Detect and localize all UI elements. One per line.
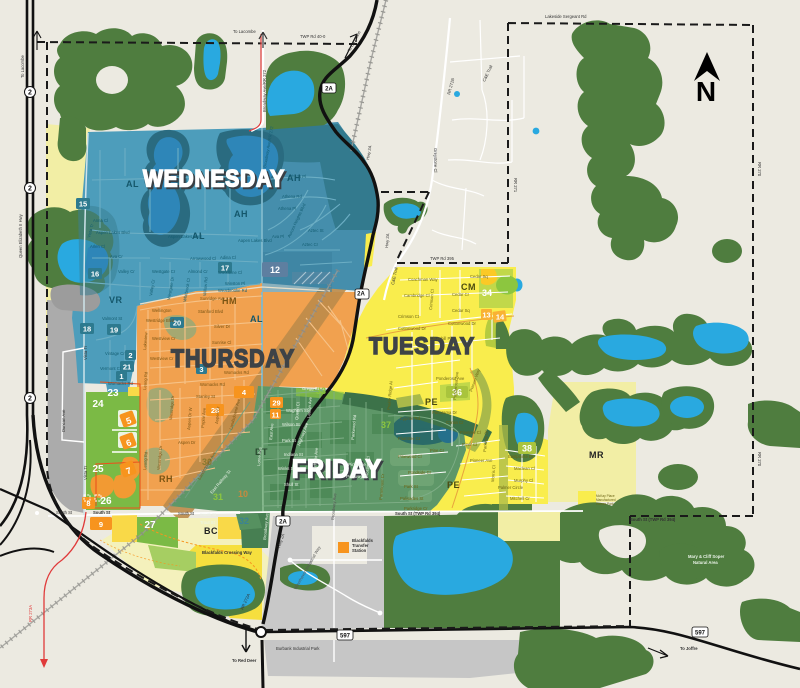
svg-text:Athens Pl: Athens Pl — [288, 174, 306, 179]
svg-text:Womacks Rd: Womacks Rd — [108, 381, 133, 386]
svg-text:14: 14 — [496, 313, 505, 322]
svg-text:Lakeside Sergeant Rd: Lakeside Sergeant Rd — [545, 14, 587, 19]
svg-text:RH: RH — [159, 474, 173, 484]
svg-text:Wellington: Wellington — [152, 308, 172, 313]
svg-text:Natural Area: Natural Area — [693, 560, 718, 565]
svg-text:Stanley St: Stanley St — [196, 394, 216, 399]
svg-text:Park St: Park St — [404, 484, 419, 489]
svg-text:Westview Cr: Westview Cr — [150, 356, 174, 361]
svg-text:9: 9 — [99, 520, 103, 529]
svg-text:Athena Pl: Athena Pl — [278, 206, 296, 211]
svg-text:VR: VR — [109, 295, 123, 305]
svg-text:1: 1 — [119, 372, 123, 381]
svg-text:C'man Cr: C'man Cr — [446, 420, 464, 425]
svg-text:Mary & Cliff Soper: Mary & Cliff Soper — [688, 554, 725, 559]
svg-text:Aspen Lakes Blvd: Aspen Lakes Blvd — [168, 234, 202, 239]
svg-text:Sunridge Ave: Sunridge Ave — [200, 296, 226, 301]
svg-text:Pondside Cr: Pondside Cr — [408, 470, 432, 475]
svg-text:Valley Cr: Valley Cr — [118, 269, 135, 274]
svg-text:Westgate Cr: Westgate Cr — [152, 269, 176, 274]
svg-text:Vista Tr: Vista Tr — [83, 345, 88, 360]
svg-text:15: 15 — [79, 200, 87, 209]
svg-text:AH: AH — [234, 209, 248, 219]
svg-text:Pinetree Cl: Pinetree Cl — [460, 430, 481, 435]
svg-text:27: 27 — [144, 520, 156, 531]
svg-text:597: 597 — [340, 634, 351, 640]
svg-text:Piper Cl: Piper Cl — [462, 442, 477, 447]
svg-text:Maclean Cl: Maclean Cl — [514, 466, 535, 471]
svg-text:Almond Cr: Almond Cr — [188, 269, 208, 274]
svg-text:Pine Cr: Pine Cr — [430, 448, 445, 453]
svg-text:2: 2 — [28, 396, 32, 403]
svg-text:Winks St: Winks St — [278, 466, 295, 471]
svg-text:South St (TWP Rd 394): South St (TWP Rd 394) — [630, 517, 676, 522]
svg-text:Panorama Dr: Panorama Dr — [432, 410, 458, 415]
svg-text:Park: Park — [420, 432, 428, 436]
svg-text:Weatbrooke Rd: Weatbrooke Rd — [218, 288, 248, 293]
svg-text:18: 18 — [83, 325, 91, 334]
svg-text:23: 23 — [107, 388, 119, 399]
svg-text:Duncan Ave: Duncan Ave — [61, 409, 66, 432]
svg-text:Wilson St: Wilson St — [282, 422, 301, 427]
svg-text:Park St: Park St — [282, 438, 297, 443]
svg-text:Palmer Circle: Palmer Circle — [498, 485, 524, 490]
svg-text:Murphy Cl: Murphy Cl — [514, 478, 533, 483]
svg-text:TWP Rd 40-0: TWP Rd 40-0 — [300, 34, 326, 39]
svg-text:Ava Cr: Ava Cr — [110, 254, 123, 259]
svg-text:2: 2 — [28, 186, 32, 193]
svg-text:Cedar Sq: Cedar Sq — [470, 274, 488, 279]
svg-text:To Lacombe: To Lacombe — [20, 55, 25, 78]
svg-text:32: 32 — [239, 516, 249, 526]
svg-text:Blackfalds Crossing Way: Blackfalds Crossing Way — [202, 550, 253, 555]
svg-text:To Lacombe: To Lacombe — [233, 29, 256, 34]
svg-text:Cottonwood Dr: Cottonwood Dr — [448, 321, 477, 326]
svg-text:Gregg St: Gregg St — [302, 386, 320, 391]
svg-text:South St: South St — [200, 512, 217, 517]
svg-text:TWP Rd 395: TWP Rd 395 — [430, 256, 455, 261]
svg-text:12: 12 — [270, 265, 280, 275]
svg-text:Broadway Ave/RR 272: Broadway Ave/RR 272 — [262, 69, 267, 112]
svg-text:N: N — [696, 76, 716, 107]
svg-text:Homes Park: Homes Park — [596, 502, 614, 506]
svg-text:AL: AL — [250, 314, 263, 324]
svg-text:Arrowwood Cl: Arrowwood Cl — [190, 256, 216, 261]
svg-text:Valmont St: Valmont St — [102, 316, 123, 321]
svg-text:Coachman Way: Coachman Way — [408, 277, 439, 282]
svg-text:Aztec Cr: Aztec Cr — [302, 242, 319, 247]
svg-text:Shull St: Shull St — [284, 482, 299, 487]
svg-text:Anna Cl: Anna Cl — [93, 218, 108, 223]
svg-text:2A: 2A — [357, 292, 365, 298]
svg-text:29: 29 — [272, 399, 280, 408]
svg-text:Arlen Cl: Arlen Cl — [90, 244, 105, 249]
svg-text:Crimson Ct: Crimson Ct — [398, 314, 420, 319]
svg-text:TUESDAY: TUESDAY — [369, 333, 475, 360]
svg-text:31: 31 — [213, 492, 223, 502]
svg-text:2A: 2A — [325, 87, 333, 93]
svg-text:Burbank Industrial Park: Burbank Industrial Park — [276, 646, 320, 651]
svg-text:PE: PE — [425, 397, 438, 407]
svg-text:2: 2 — [28, 90, 32, 97]
svg-text:AL: AL — [126, 179, 139, 189]
svg-text:11: 11 — [272, 411, 280, 420]
svg-text:Centennial: Centennial — [416, 427, 434, 431]
svg-text:Womacks Rd: Womacks Rd — [224, 370, 249, 375]
svg-text:19: 19 — [110, 326, 118, 335]
svg-text:Pinewood Cl: Pinewood Cl — [398, 454, 422, 459]
svg-text:Aztec St: Aztec St — [308, 228, 324, 233]
svg-text:WEDNESDAY: WEDNESDAY — [143, 166, 285, 193]
svg-text:597: 597 — [695, 631, 706, 637]
svg-text:Stanford Blvd: Stanford Blvd — [198, 309, 224, 314]
svg-text:21: 21 — [123, 363, 131, 372]
svg-text:Cyprus Rd: Cyprus Rd — [400, 416, 420, 421]
svg-text:Westview Cr: Westview Cr — [152, 336, 176, 341]
svg-text:Eastpointe Dr: Eastpointe Dr — [508, 454, 534, 459]
svg-text:Woodbine Cl: Woodbine Cl — [218, 270, 242, 275]
svg-text:2: 2 — [128, 351, 132, 360]
svg-text:Churchill Pl: Churchill Pl — [430, 336, 451, 341]
svg-text:RR 273A: RR 273A — [28, 605, 33, 622]
svg-text:RR 270: RR 270 — [757, 452, 762, 467]
svg-text:25: 25 — [92, 464, 104, 475]
svg-text:Silver Dr: Silver Dr — [214, 324, 231, 329]
svg-text:13: 13 — [482, 311, 490, 320]
svg-text:10: 10 — [238, 489, 248, 499]
svg-text:Vermont Cl: Vermont Cl — [100, 366, 121, 371]
svg-text:South St: South St — [56, 510, 73, 515]
svg-text:Palisades St: Palisades St — [400, 496, 424, 501]
svg-text:Sunrise Cl: Sunrise Cl — [212, 340, 231, 345]
svg-text:26: 26 — [100, 496, 112, 507]
svg-text:34: 34 — [482, 288, 492, 298]
svg-text:16: 16 — [91, 270, 99, 279]
svg-text:Womacks Rd: Womacks Rd — [200, 382, 225, 387]
svg-text:South St: South St — [93, 510, 111, 515]
svg-text:Aspen Dr: Aspen Dr — [178, 440, 196, 445]
svg-text:Pioneer Ave: Pioneer Ave — [470, 458, 493, 463]
svg-text:Indiana St: Indiana St — [284, 452, 304, 457]
svg-text:PE: PE — [447, 480, 460, 490]
svg-text:37: 37 — [381, 420, 391, 430]
svg-text:24: 24 — [92, 399, 104, 410]
svg-text:Plumtree Cr: Plumtree Cr — [398, 436, 421, 441]
svg-text:To Joffre: To Joffre — [680, 646, 698, 651]
svg-text:Ponderosa Ave: Ponderosa Ave — [436, 376, 465, 381]
svg-text:Cedar Cr: Cedar Cr — [452, 292, 470, 297]
svg-text:RR 270: RR 270 — [757, 162, 762, 177]
svg-text:2A: 2A — [279, 520, 287, 526]
svg-text:RR 271: RR 271 — [513, 178, 518, 193]
svg-text:Queen Elizabeth II Hwy: Queen Elizabeth II Hwy — [18, 213, 23, 258]
svg-text:Ava Pl: Ava Pl — [272, 234, 284, 239]
svg-text:MR: MR — [589, 450, 604, 460]
svg-text:Trout St: Trout St — [200, 520, 216, 525]
svg-text:Winston Pl: Winston Pl — [225, 281, 245, 286]
svg-text:Cottonwood Dr: Cottonwood Dr — [398, 326, 427, 331]
svg-text:South St: South St — [178, 511, 195, 516]
svg-text:Cedar Sq: Cedar Sq — [452, 308, 470, 313]
svg-text:Vintage Cr: Vintage Cr — [105, 351, 125, 356]
svg-text:Mitchell Cr: Mitchell Cr — [510, 496, 530, 501]
svg-text:Greystone Cl: Greystone Cl — [433, 148, 438, 173]
svg-text:To Red Deer: To Red Deer — [232, 658, 257, 663]
svg-text:CM: CM — [461, 282, 476, 292]
svg-text:Athena Rd: Athena Rd — [282, 194, 302, 199]
svg-text:Station: Station — [352, 548, 367, 553]
svg-text:Aspen Lakes Blvd: Aspen Lakes Blvd — [96, 230, 130, 235]
svg-text:Westridge Blvd: Westridge Blvd — [146, 318, 175, 323]
svg-text:BC: BC — [204, 526, 218, 536]
svg-text:Aapen Lakes Blvd: Aapen Lakes Blvd — [238, 238, 272, 243]
svg-text:Parkridge Cr: Parkridge Cr — [404, 506, 428, 511]
svg-text:South St (TWP Rd 394): South St (TWP Rd 394) — [395, 511, 441, 516]
svg-text:Cambridge Cl: Cambridge Cl — [404, 293, 430, 298]
svg-text:THURSDAY: THURSDAY — [171, 345, 295, 373]
svg-text:Vista Tr: Vista Tr — [83, 465, 88, 480]
svg-text:38: 38 — [522, 444, 532, 454]
svg-text:Adina Cl: Adina Cl — [220, 255, 236, 260]
